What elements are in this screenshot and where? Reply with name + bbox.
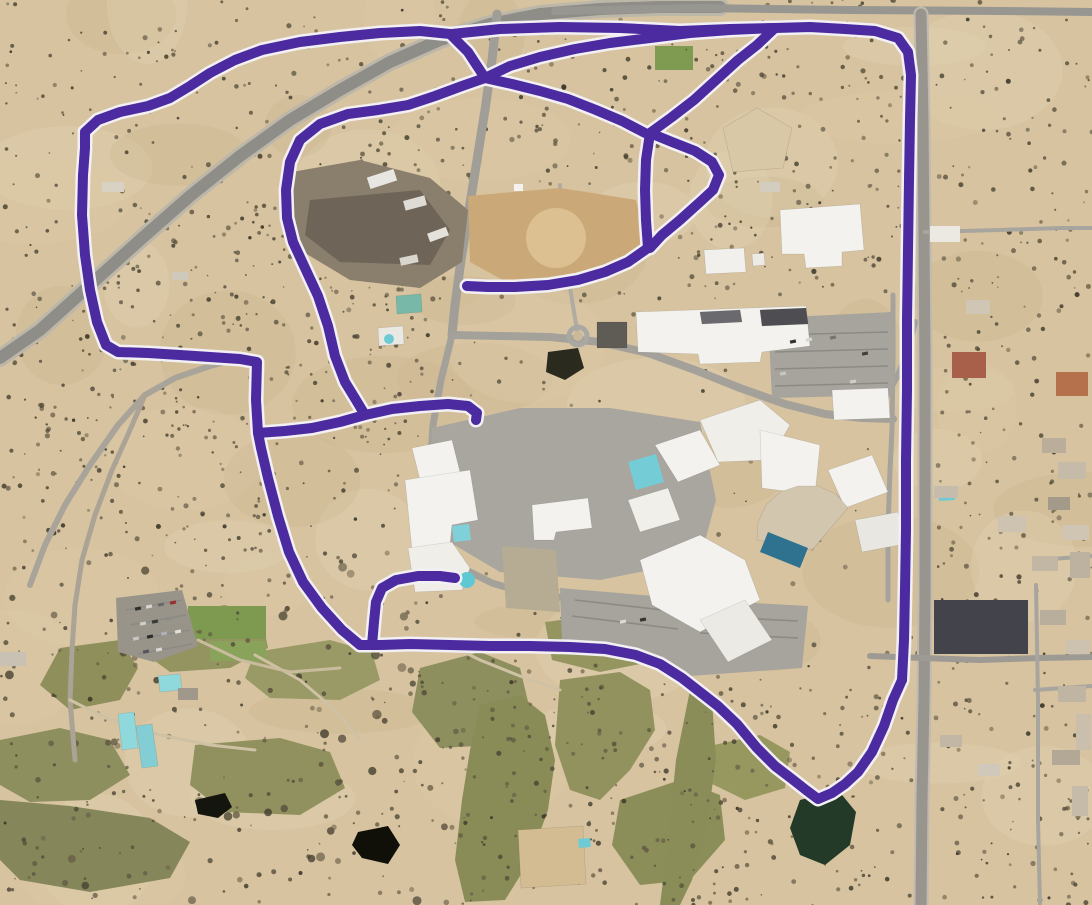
map-viewport[interactable] — [0, 0, 1092, 905]
satellite-map-canvas[interactable] — [0, 0, 1092, 905]
